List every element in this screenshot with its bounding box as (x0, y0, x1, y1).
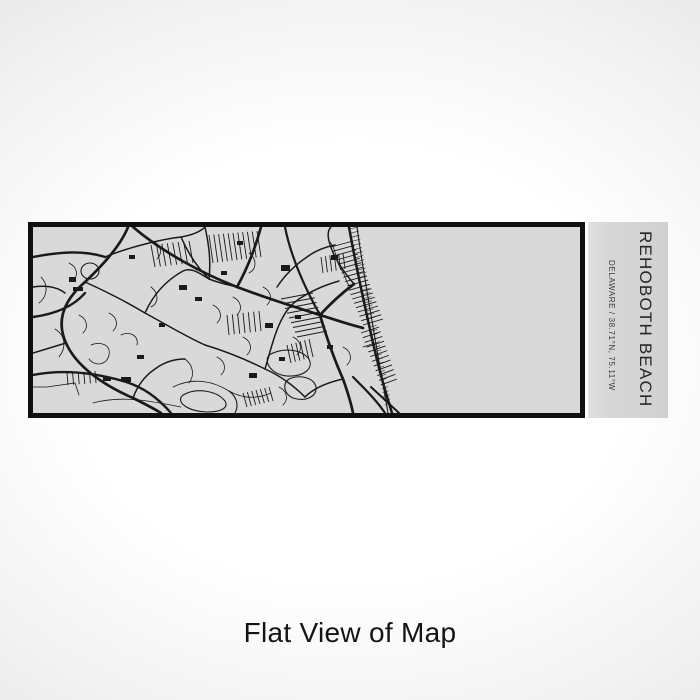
map-building (129, 255, 135, 259)
map-street-hatch (289, 312, 320, 318)
map-road (320, 284, 354, 315)
map-building (69, 277, 76, 282)
map-board (28, 222, 585, 418)
map-street-hatch (333, 245, 355, 251)
map-street-hatch (291, 344, 295, 362)
map-street-hatch (297, 331, 327, 337)
map-street-hatch (233, 233, 237, 260)
map-building (237, 241, 243, 245)
map-building (249, 373, 257, 378)
map-road (109, 313, 116, 331)
map-street-hatch (214, 235, 218, 263)
map-building (73, 287, 83, 291)
map-building (265, 323, 273, 328)
map-street-hatch (281, 293, 313, 299)
map-road (33, 343, 66, 353)
map-road (185, 359, 192, 383)
map-building (103, 377, 111, 381)
map-road (173, 381, 271, 397)
map-street-hatch (300, 341, 304, 359)
map-street-hatch (293, 322, 324, 328)
map-road (47, 383, 79, 395)
map-street-hatch (243, 313, 245, 333)
map-road (213, 305, 220, 323)
product-mockup: REHOBOTH BEACH DELAWARE / 38.71°N, 75.11… (0, 0, 700, 700)
map-road (243, 337, 250, 355)
map-road (39, 277, 46, 303)
map-building (179, 285, 187, 290)
map-water-outline (181, 391, 227, 412)
map-building (137, 355, 144, 359)
map-road (33, 252, 105, 257)
map-street-hatch (189, 241, 193, 263)
map-building (195, 297, 202, 301)
map-street-hatch (243, 393, 247, 407)
map-road (217, 357, 224, 375)
map-street-hatch (357, 264, 365, 266)
map-street-hatch (343, 253, 345, 269)
map-street-hatch (309, 339, 313, 357)
map-street-hatch (325, 256, 327, 272)
map-svg (33, 227, 580, 413)
map-street-hatch (370, 351, 387, 357)
map-street-hatch (95, 371, 96, 383)
map-street-hatch (356, 256, 364, 258)
map-road (33, 286, 65, 293)
view-caption: Flat View of Map (0, 616, 700, 650)
map-street-hatch (232, 314, 234, 334)
map-street-hatch (254, 312, 256, 332)
map-road (89, 343, 109, 363)
map-water-outline (285, 377, 316, 400)
map-street-hatch (184, 242, 188, 264)
map-road (205, 345, 305, 397)
map-road (145, 270, 209, 313)
map-street-hatch (78, 372, 79, 384)
map-street-hatch (259, 311, 261, 331)
map-street-hatch (331, 241, 353, 247)
map-building (331, 255, 338, 260)
map-street-hatch (228, 233, 232, 260)
map-street-hatch (227, 315, 229, 335)
map-street-hatch (223, 234, 227, 261)
map-building (327, 345, 333, 349)
map-street-hatch (287, 345, 291, 363)
map-title-panel: REHOBOTH BEACH DELAWARE / 38.71°N, 75.11… (588, 222, 668, 418)
map-street-hatch (247, 392, 251, 406)
state-coordinates-label: DELAWARE / 38.71°N, 75.11°W (607, 260, 616, 391)
map-street-hatch (357, 260, 365, 262)
map-street-hatch (355, 252, 363, 254)
map-building (279, 357, 285, 361)
map-street-hatch (238, 233, 242, 260)
map-street-hatch (361, 280, 368, 282)
map-road (33, 293, 85, 317)
map-street-hatch (252, 391, 256, 405)
map-street-hatch (321, 257, 323, 273)
map-street-hatch (151, 245, 155, 267)
map-street-hatch (359, 310, 379, 316)
map-road (343, 347, 350, 365)
map-street-hatch (238, 314, 240, 334)
map-street-hatch (173, 243, 177, 265)
map-road (133, 359, 185, 398)
map-building (221, 271, 227, 275)
city-title: REHOBOTH BEACH (635, 231, 655, 407)
map-street-hatch (73, 373, 74, 385)
map-road (121, 333, 137, 345)
map-street-hatch (243, 232, 247, 259)
map-street-hatch (358, 306, 378, 312)
map-road (205, 227, 210, 279)
map-street-hatch (162, 244, 166, 266)
map-road (305, 379, 343, 397)
map-road (79, 315, 86, 333)
map-building (121, 377, 131, 382)
map-street-hatch (67, 373, 68, 385)
map-building (281, 265, 290, 271)
map-road (233, 297, 240, 315)
map-street-hatch (295, 326, 325, 332)
map-street-hatch (247, 232, 251, 258)
map-street-hatch (219, 234, 223, 262)
map-building (159, 323, 165, 327)
map-street-hatch (248, 312, 250, 332)
map-building (295, 315, 301, 319)
map-road (320, 315, 363, 328)
